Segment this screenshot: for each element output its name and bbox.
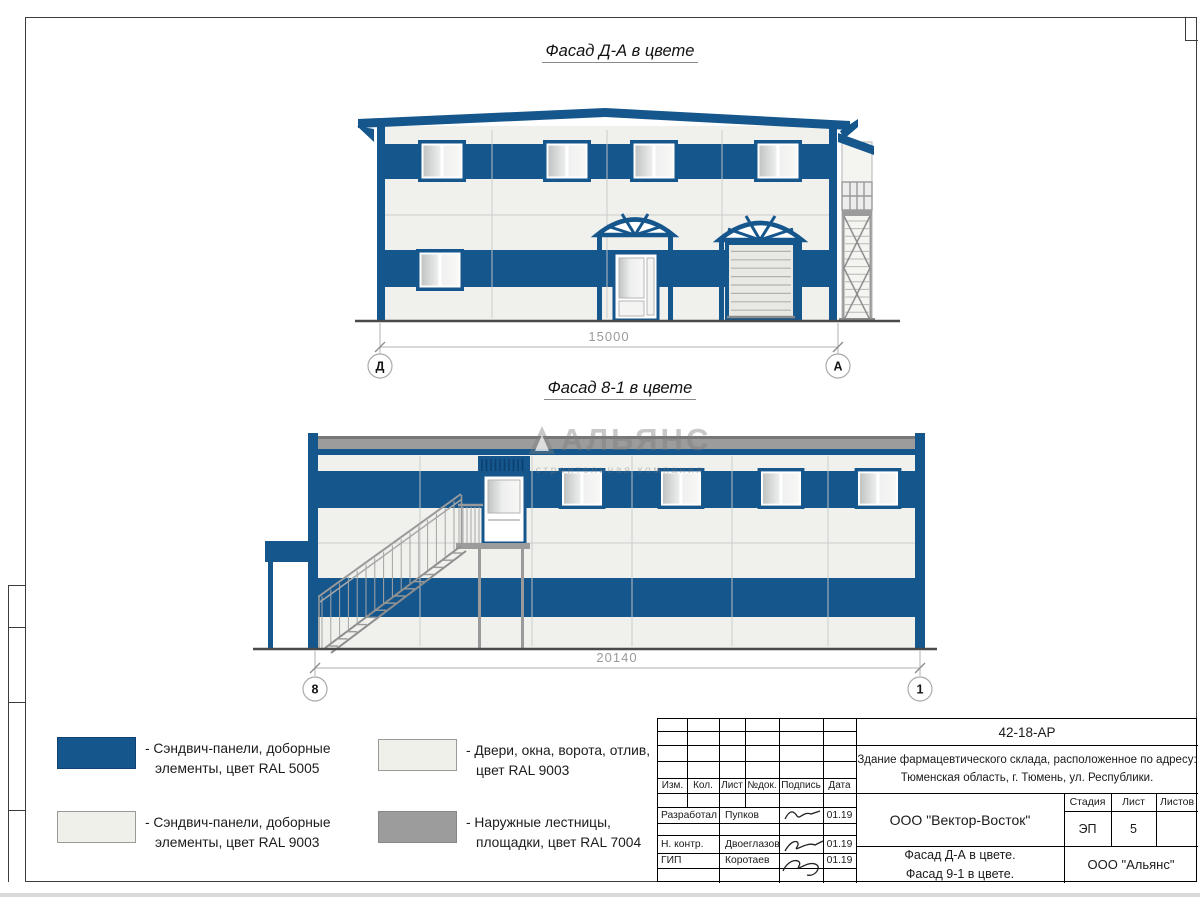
legend-swatch-gray xyxy=(378,811,457,843)
left-margin-divider xyxy=(8,627,25,628)
tb-doc-number: 42-18-АР xyxy=(856,719,1198,745)
tb-sheets-value xyxy=(1156,811,1198,846)
tb-name-gip: Коротаев xyxy=(722,853,782,868)
tb-stage-value: ЭП xyxy=(1064,811,1111,846)
tb-col-kol: Кол. xyxy=(687,778,719,793)
signature-developer xyxy=(781,807,823,823)
tb-col-podpis: Подпись xyxy=(779,778,823,793)
tb-org: ООО "Альянс" xyxy=(1064,846,1198,883)
tb-role-developer: Разработал xyxy=(658,807,722,823)
legend-item-3: - Двери, окна, ворота, отлив,цвет RAL 90… xyxy=(466,741,650,781)
tb-col-izm: Изм. xyxy=(658,778,687,793)
paper-bottom-edge xyxy=(0,893,1200,897)
legend-item-2: - Сэндвич-панели, доборныеэлементы, цвет… xyxy=(145,813,331,853)
tb-sheets-label: Листов xyxy=(1156,793,1198,811)
legend-item-1: - Сэндвич-панели, доборныеэлементы, цвет… xyxy=(145,739,331,779)
tb-date-developer: 01.19 xyxy=(823,807,856,823)
tb-col-list: Лист xyxy=(719,778,745,793)
left-margin-divider xyxy=(8,585,25,586)
tb-subject: Фасад Д-А в цвете. Фасад 9-1 в цвете. xyxy=(856,846,1064,883)
signature-ncontrol-gip xyxy=(779,833,825,881)
tb-project-description: Здание фармацевтического склада, располо… xyxy=(856,746,1198,793)
left-margin-divider xyxy=(8,810,25,811)
left-margin-column xyxy=(8,585,9,882)
tb-stage-label: Стадия xyxy=(1064,793,1111,811)
tb-col-data: Дата xyxy=(823,778,856,793)
tb-role-gip: ГИП xyxy=(658,853,722,868)
corner-format-box xyxy=(1185,17,1198,41)
legend-swatch-white xyxy=(57,811,136,843)
drawing-sheet: 15000 Д А xyxy=(0,0,1200,900)
tb-name-ncontrol: Двоеглазов xyxy=(722,835,782,853)
tb-company: ООО "Вектор-Восток" xyxy=(856,793,1064,846)
legend-swatch-blue xyxy=(57,737,136,769)
legend-item-4: - Наружные лестницы,площадки, цвет RAL 7… xyxy=(466,813,641,853)
tb-col-ndok: №док. xyxy=(745,778,779,793)
tb-name-developer: Пупков xyxy=(722,807,782,823)
tb-date-gip: 01.19 xyxy=(823,853,856,868)
tb-sheet-value: 5 xyxy=(1111,811,1156,846)
tb-sheet-label: Лист xyxy=(1111,793,1156,811)
tb-date-ncontrol: 01.19 xyxy=(823,835,856,853)
left-margin-divider xyxy=(8,702,25,703)
title-block: Изм. Кол. Лист №док. Подпись Дата Разраб… xyxy=(657,718,1197,882)
legend-swatch-doors xyxy=(378,739,457,771)
tb-role-ncontrol: Н. контр. xyxy=(658,835,722,853)
